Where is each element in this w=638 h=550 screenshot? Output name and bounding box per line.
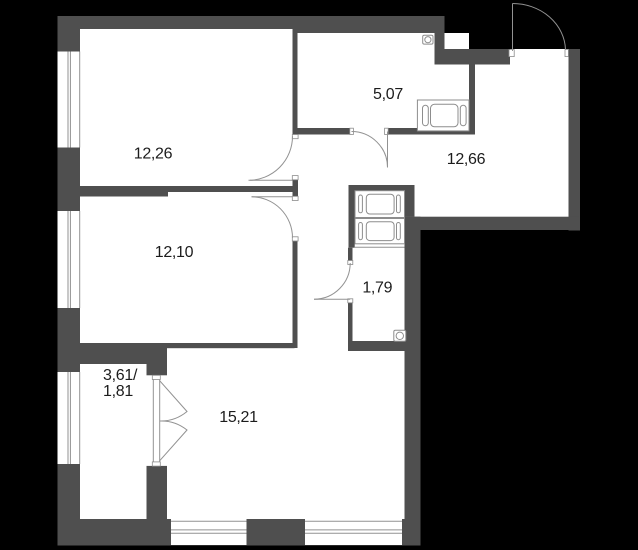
svg-text:5,07: 5,07 xyxy=(373,86,403,103)
svg-text:3,61/: 3,61/ xyxy=(103,367,138,384)
svg-text:12,26: 12,26 xyxy=(134,146,173,163)
svg-text:1,79: 1,79 xyxy=(362,280,392,297)
svg-text:12,10: 12,10 xyxy=(155,244,194,261)
svg-text:15,21: 15,21 xyxy=(219,409,258,426)
svg-text:1,81: 1,81 xyxy=(103,383,133,400)
svg-text:12,66: 12,66 xyxy=(447,151,486,168)
